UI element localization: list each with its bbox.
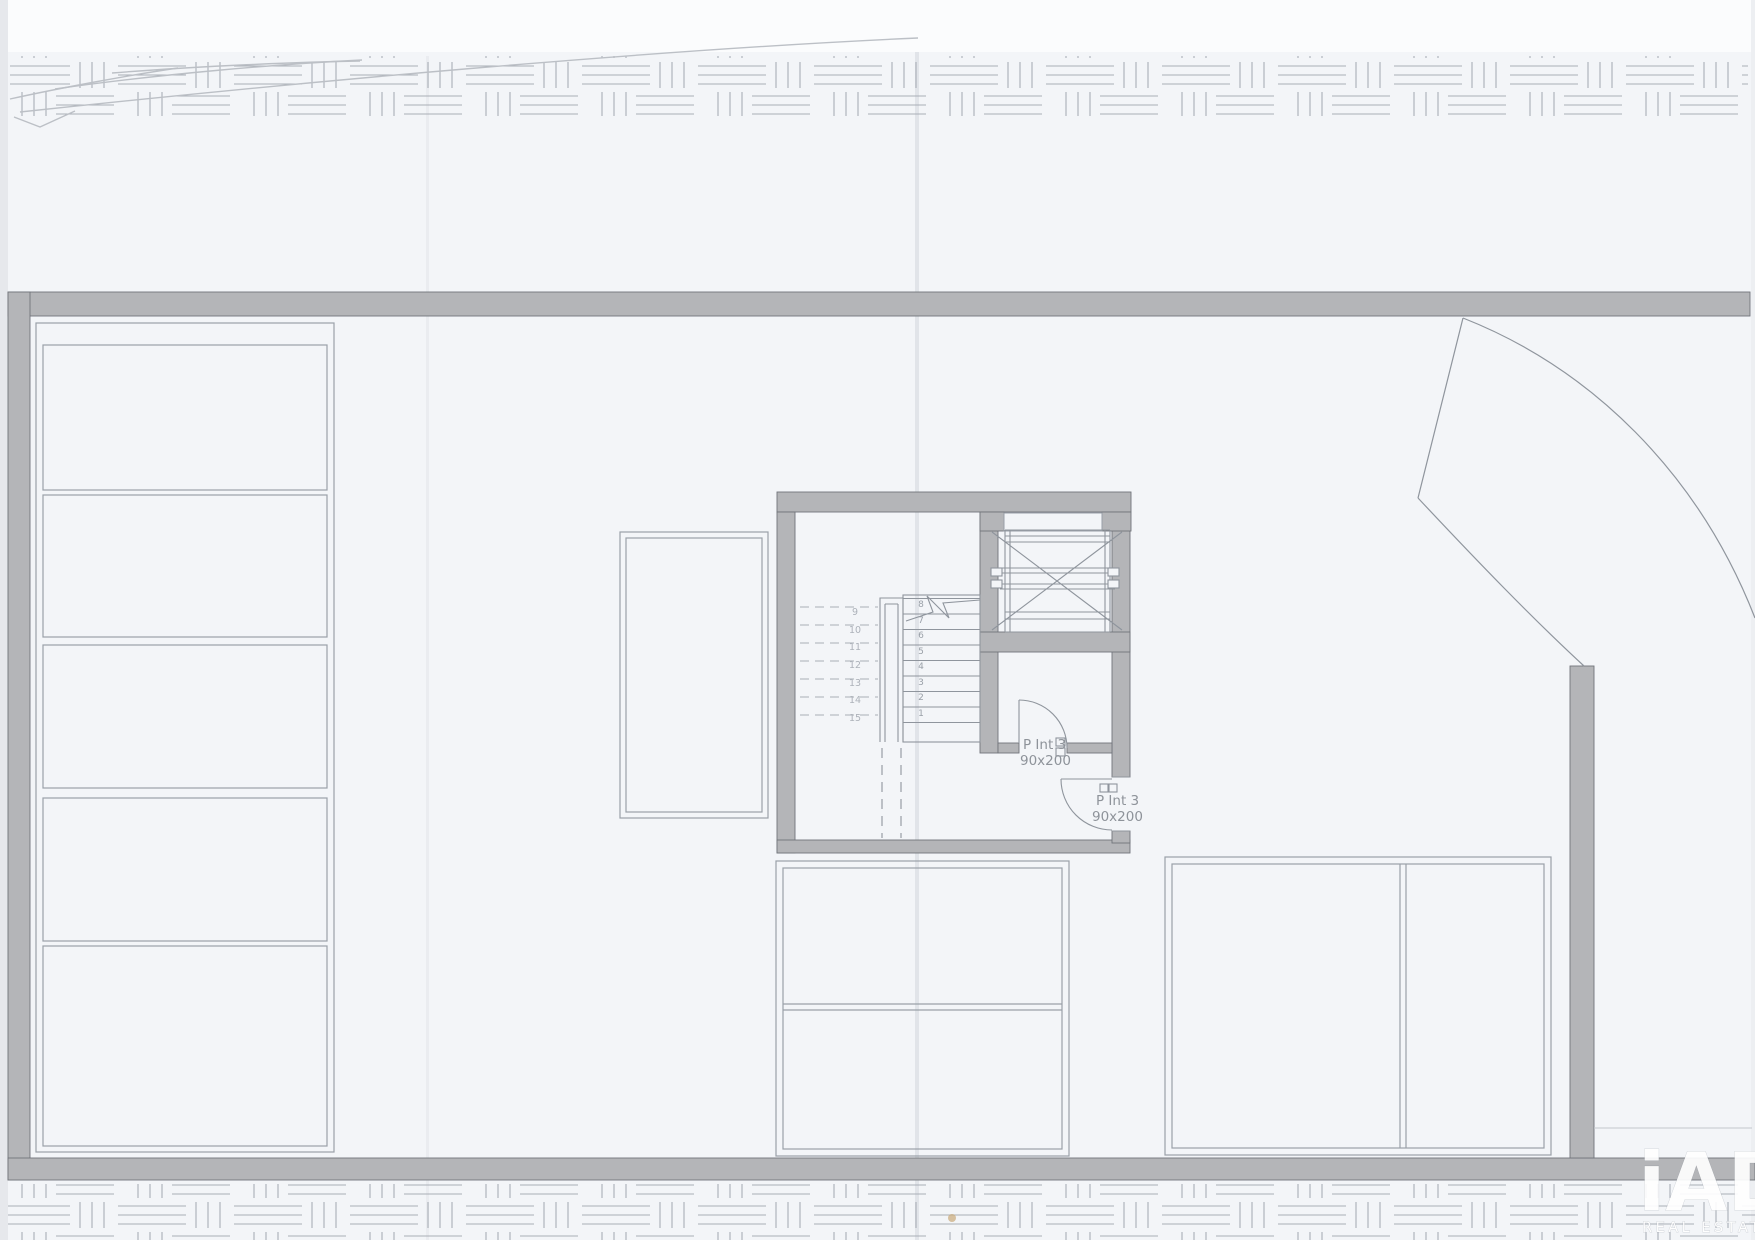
stair-number: 1 bbox=[918, 709, 924, 719]
outer-wall-left bbox=[8, 292, 30, 1180]
stair-number: 2 bbox=[918, 693, 924, 703]
stair-number: 10 bbox=[849, 625, 861, 636]
elevator-guide-left-2 bbox=[991, 580, 1002, 588]
lobby-wall-right-stub bbox=[1067, 743, 1112, 753]
stair-number: 7 bbox=[918, 616, 924, 626]
paper-left-edge bbox=[0, 0, 8, 1240]
door-1-size: 90x200 bbox=[1020, 753, 1071, 769]
stair-number: 5 bbox=[918, 647, 924, 657]
right-wall bbox=[1570, 666, 1594, 1158]
fold-crease-left bbox=[426, 56, 429, 1240]
outer-wall-bottom bbox=[8, 1158, 1755, 1180]
shaft-wall-bottom bbox=[980, 632, 1130, 652]
elevator-guide-left-1 bbox=[991, 568, 1002, 576]
stair-number: 14 bbox=[849, 695, 861, 706]
shaft-niche bbox=[1004, 513, 1102, 531]
door-2-stop-glyph-2 bbox=[1109, 784, 1117, 792]
door-2-label: P Int 3 90x200 bbox=[1092, 793, 1143, 825]
iad-watermark: iAD REAL ESTATE bbox=[1638, 1136, 1755, 1236]
paper bbox=[0, 0, 1755, 1240]
door-2-name: P Int 3 bbox=[1096, 793, 1139, 809]
door-2-stop-glyph-1 bbox=[1100, 784, 1108, 792]
stair-number: 13 bbox=[849, 678, 861, 689]
shaft-niche-wall-right bbox=[1102, 512, 1131, 531]
stair-number: 15 bbox=[849, 713, 861, 724]
scanned-floor-plan-page: 1 2 3 4 5 6 7 8 9 10 11 12 13 14 15 bbox=[0, 0, 1755, 1240]
iad-watermark-tagline: REAL ESTATE bbox=[1642, 1220, 1755, 1236]
elevator-guide-right-2 bbox=[1108, 580, 1119, 588]
outer-wall-top bbox=[8, 292, 1750, 316]
shaft-niche-wall-left bbox=[980, 512, 1004, 531]
door-2-size: 90x200 bbox=[1092, 809, 1143, 825]
stair-number: 3 bbox=[918, 678, 924, 688]
core-wall-bottom bbox=[777, 840, 1130, 853]
paper-speck bbox=[948, 1214, 956, 1222]
floor-plan-drawing: 1 2 3 4 5 6 7 8 9 10 11 12 13 14 15 bbox=[0, 0, 1755, 1240]
lobby-wall-left-stub bbox=[998, 743, 1019, 753]
paper-right-edge bbox=[1751, 0, 1755, 1240]
core-wall-left bbox=[777, 512, 795, 853]
paper-top-margin bbox=[0, 0, 1755, 52]
stair-number: 12 bbox=[849, 660, 861, 671]
fold-crease-center bbox=[915, 52, 919, 1240]
stair-number: 4 bbox=[918, 662, 924, 672]
stair-number: 6 bbox=[918, 631, 924, 641]
iad-watermark-brand: iAD bbox=[1638, 1136, 1755, 1229]
stair-number: 8 bbox=[918, 600, 924, 610]
bottom-hatch-band bbox=[8, 1184, 1755, 1240]
stair-number: 11 bbox=[849, 642, 861, 653]
door-1-label: P Int 3 90x200 bbox=[1020, 737, 1071, 769]
elevator-guide-right-1 bbox=[1108, 568, 1119, 576]
core-wall-top bbox=[777, 492, 1131, 512]
door-1-name: P Int 3 bbox=[1023, 737, 1066, 753]
stair-number: 9 bbox=[852, 607, 858, 618]
shaft-wall-right-stub bbox=[1112, 831, 1130, 843]
